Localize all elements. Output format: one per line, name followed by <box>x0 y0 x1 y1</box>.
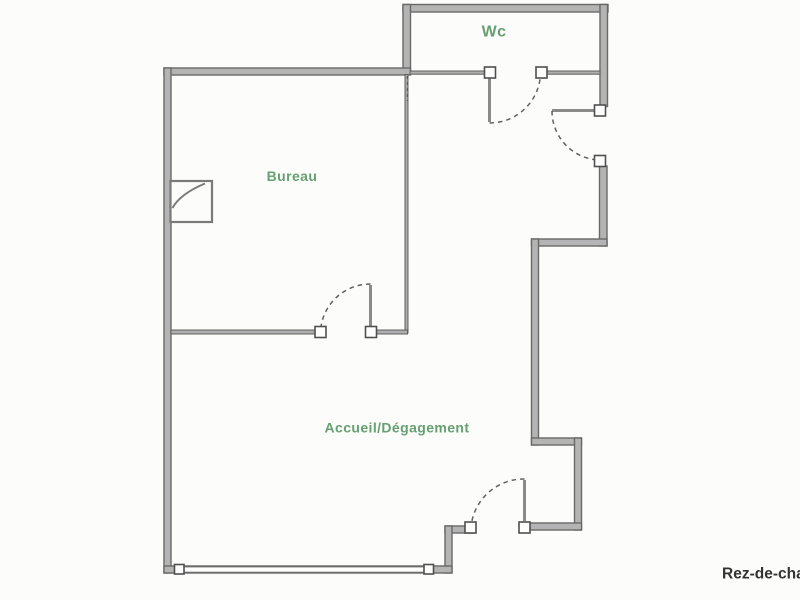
door-jamb <box>519 522 530 533</box>
room-label-wc: Wc <box>482 24 507 41</box>
wall-jog-upper <box>532 239 608 246</box>
door-accueil <box>465 479 530 533</box>
door-wc <box>485 67 548 123</box>
wall-fixture-left <box>171 181 213 222</box>
door-swing-wc <box>490 73 541 123</box>
room-label-bureau: Bureau <box>267 168 318 184</box>
door-jamb <box>485 67 496 78</box>
door-swing-accueil <box>471 479 525 527</box>
wall-bureau-right <box>405 75 408 334</box>
wall-right-upper <box>600 5 608 107</box>
floor-title: Rez-de-chau <box>722 566 800 583</box>
door-jamb <box>366 327 377 338</box>
window-jamb <box>175 565 185 575</box>
door-jamb <box>536 67 547 78</box>
wall-mid-left <box>171 330 317 334</box>
door-bureau <box>315 284 377 338</box>
door-swing-bureau <box>321 284 371 332</box>
door-jamb <box>595 156 606 167</box>
window-jamb <box>424 565 434 575</box>
wall-wc-top <box>403 5 608 13</box>
door-jamb <box>595 105 606 116</box>
wall-wc-bottom-left <box>410 71 486 74</box>
wall-right-mid <box>600 166 608 246</box>
door-jamb <box>465 522 476 533</box>
room-label-accueil: Accueil/Dégagement <box>325 420 470 436</box>
wall-bureau-top <box>164 68 411 75</box>
door-corridor-right <box>552 105 606 167</box>
wall-right-inner <box>532 239 539 445</box>
floor-plan-canvas: Wc Bureau Accueil/Dégagement Rez-de-chau <box>0 0 800 600</box>
window-glazing <box>179 567 429 573</box>
wall-mid-right <box>375 330 408 334</box>
wall-wc-left <box>403 5 411 75</box>
door-swing-corridor <box>552 111 601 160</box>
floor-plan-page: Wc Bureau Accueil/Dégagement Rez-de-chau <box>0 0 800 600</box>
wall-wc-bottom-right <box>546 71 600 74</box>
exterior-walls <box>164 5 608 574</box>
wall-right-lower <box>575 438 582 530</box>
wall-left <box>164 68 171 573</box>
door-jamb <box>315 327 326 338</box>
